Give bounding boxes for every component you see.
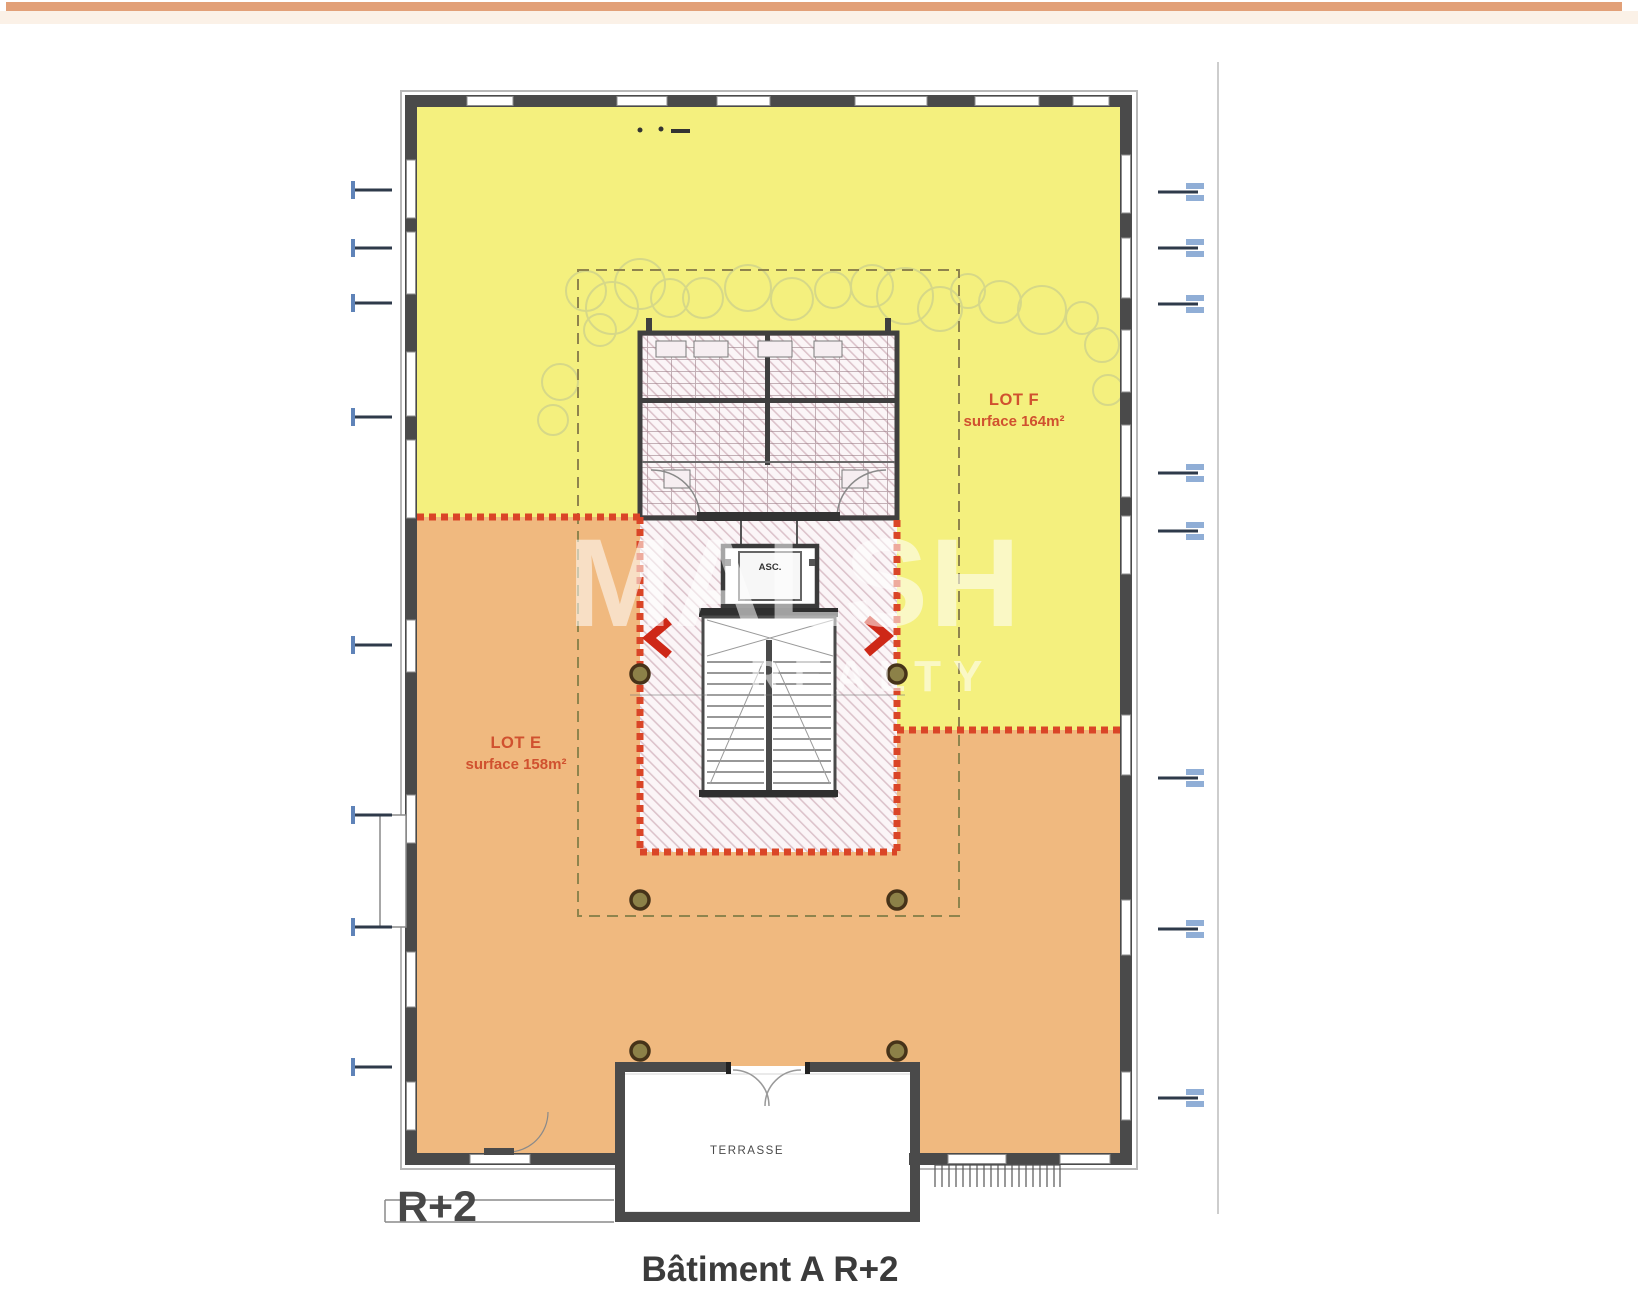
- facade-protrusion: [380, 815, 406, 927]
- floor-plan-svg: [0, 0, 1638, 1300]
- lot-f-label: LOT F surface 164m²: [919, 390, 1109, 432]
- terrace: [615, 1062, 920, 1222]
- lot-e-name: LOT E: [421, 733, 611, 754]
- lot-f-surface: surface 164m²: [919, 411, 1109, 432]
- sanitary-block: [640, 318, 897, 521]
- lot-e-label: LOT E surface 158m²: [421, 733, 611, 775]
- terrace-label: TERRASSE: [667, 1145, 827, 1157]
- plan-caption: Bâtiment A R+2: [560, 1250, 980, 1290]
- staircase: [699, 608, 838, 797]
- level-label: R+2: [397, 1186, 477, 1229]
- lot-e-surface: surface 158m²: [421, 754, 611, 775]
- lot-f-name: LOT F: [919, 390, 1109, 411]
- page: LOT F surface 164m² LOT E surface 158m² …: [0, 0, 1638, 1300]
- dimension-markers-right: [1158, 183, 1204, 1107]
- dimension-markers-left: [351, 181, 392, 1076]
- elevator-label: ASC.: [741, 562, 799, 573]
